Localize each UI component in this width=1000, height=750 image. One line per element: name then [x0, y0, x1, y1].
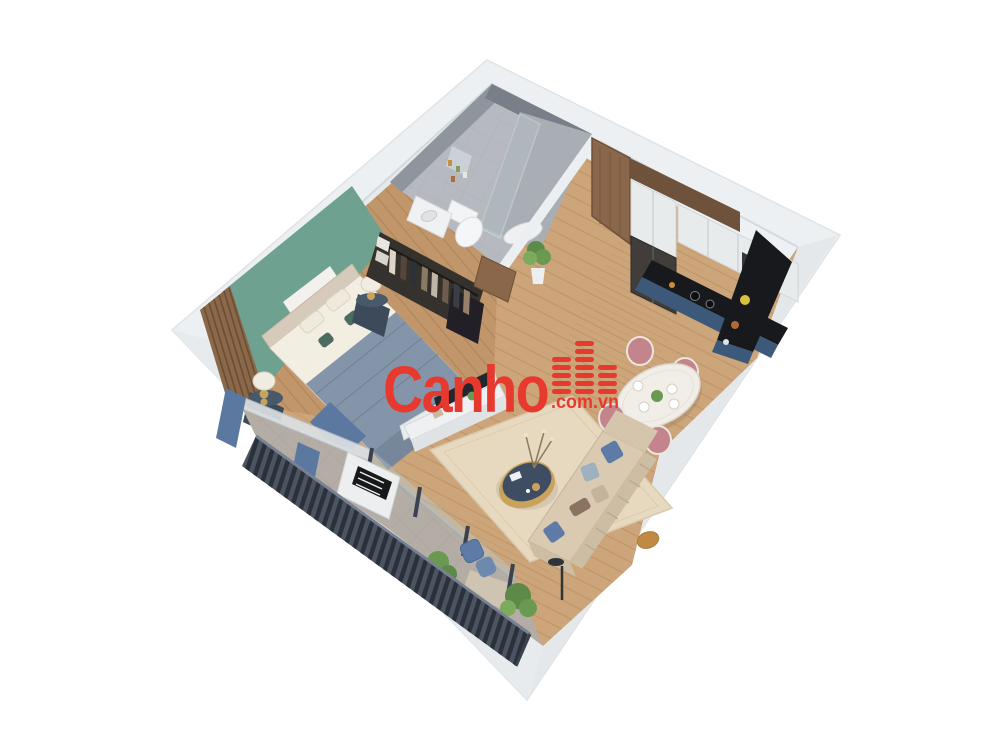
toiletry-item: [448, 160, 452, 166]
counter-glass: [723, 339, 729, 345]
logo-bar: [552, 381, 571, 386]
logo-bar: [575, 341, 594, 346]
place-setting: [667, 384, 677, 394]
floorplan-page: Canho .com.vn: [0, 0, 1000, 750]
dining-chair: [627, 337, 653, 365]
plant-leaves: [523, 251, 537, 265]
logo-bar: [552, 373, 571, 378]
plant-pot: [531, 268, 545, 284]
branch-blossom: [542, 429, 546, 433]
logo-bar: [575, 365, 594, 370]
hanging-clothes: [400, 255, 407, 281]
branch-blossom: [550, 437, 554, 441]
hanging-clothes: [453, 283, 460, 309]
hanging-clothes: [421, 266, 428, 292]
logo-bar: [575, 381, 594, 386]
place-setting: [669, 399, 679, 409]
table-centerpiece: [651, 390, 663, 402]
place-setting: [633, 381, 643, 391]
toiletry-item: [463, 172, 467, 178]
logo-bar: [598, 365, 617, 370]
gold-tray: [532, 483, 540, 491]
counter-jar: [669, 282, 675, 288]
place-setting: [639, 402, 649, 412]
toiletry-item: [456, 166, 460, 172]
floor-lamp-head: [548, 558, 564, 566]
logo-bar: [575, 357, 594, 362]
hanging-clothes: [442, 278, 449, 304]
cooktop-pan: [691, 292, 700, 301]
watermark-domain-text: .com.vn: [551, 392, 619, 413]
plant: [519, 599, 537, 617]
hanging-clothes: [410, 260, 417, 286]
branch-blossom: [524, 433, 528, 437]
floorplan-render: Canho .com.vn: [0, 0, 1000, 750]
logo-bar: [598, 373, 617, 378]
coffee-cup: [526, 489, 530, 493]
copper-pot: [731, 321, 739, 329]
logo-bar: [552, 365, 571, 370]
toiletry-item: [451, 176, 455, 182]
hanging-clothes: [463, 289, 470, 315]
lamp-bead: [260, 390, 269, 399]
logo-bar: [575, 373, 594, 378]
hanging-clothes: [431, 272, 438, 298]
cooktop-pan: [706, 300, 714, 308]
hanging-clothes: [389, 249, 396, 275]
logo-bar: [552, 357, 571, 362]
plant-leaves: [535, 249, 551, 265]
logo-bar: [598, 381, 617, 386]
window-curtain: [216, 388, 246, 448]
watermark-brand-text: Canho: [383, 352, 548, 426]
lamp-shade: [253, 372, 275, 390]
logo-bar: [575, 349, 594, 354]
counter-flowers: [740, 295, 750, 305]
lamp-bead: [367, 292, 375, 300]
